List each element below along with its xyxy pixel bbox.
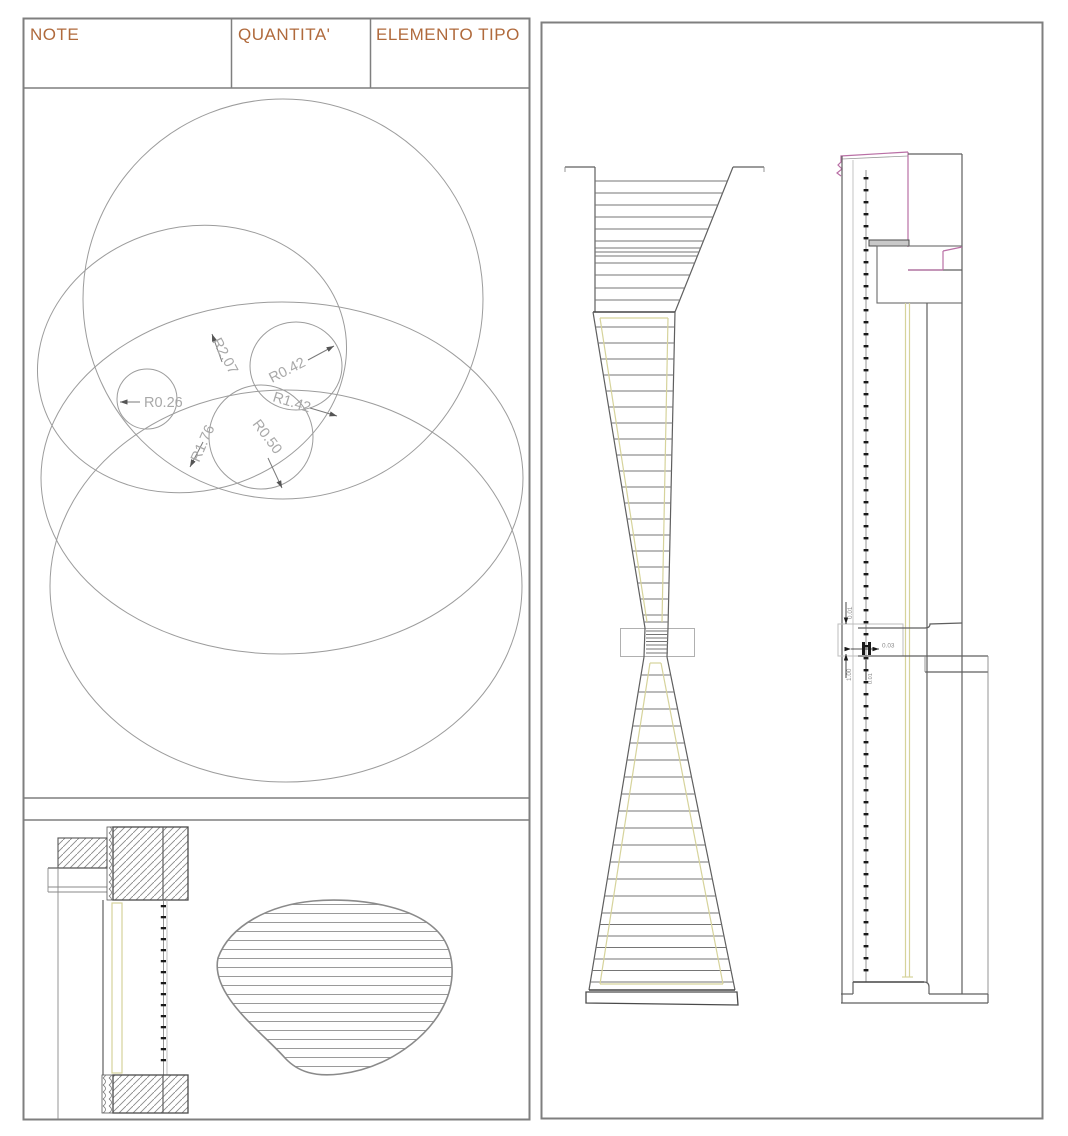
sill-assembly	[841, 982, 988, 1003]
waist-collar-block	[621, 629, 695, 657]
upper-glass-outline	[600, 318, 668, 622]
funnel-louvers	[595, 181, 727, 300]
facade-section: 0.01 0.03 1.00 0.01	[837, 152, 988, 1003]
lower-cone-louvers	[590, 675, 733, 982]
right-panel: 0.01 0.03 1.00 0.01	[542, 23, 1043, 1119]
ledge-profile	[869, 240, 909, 246]
frame-section-detail	[48, 827, 188, 1119]
base-plate	[586, 992, 738, 1005]
profile-plan-blob	[217, 900, 452, 1075]
dim-001-bottom: 0.01	[868, 673, 874, 684]
dim-001-top: 0.01	[847, 606, 854, 619]
head-block	[877, 246, 962, 303]
cad-sheet: NOTE QUANTITA' ELEMENTO TIPO R0.26	[0, 0, 1068, 1136]
header-cell-note: NOTE	[30, 25, 79, 44]
radius-label-r207: R2.07	[208, 335, 240, 377]
left-panel: NOTE QUANTITA' ELEMENTO TIPO R0.26	[7, 19, 529, 1120]
radius-label-r142: R1.42	[271, 390, 313, 417]
right-panel-border	[542, 23, 1043, 1119]
radius-label-r042: R0.42	[267, 355, 309, 387]
tower-elevation	[565, 167, 764, 1005]
waist-junction: 0.01 0.03 1.00 0.01	[838, 602, 988, 994]
dim-100: 1.00	[846, 668, 853, 681]
dim-003: 0.03	[882, 643, 895, 650]
large-circle-bottom	[50, 390, 522, 782]
waist-neck-louvers	[646, 631, 668, 653]
large-ellipse-left	[7, 191, 377, 527]
circle-construction-drawing: R0.26 R2.07 R0.42 R1.42 R1.76 R0.50	[7, 99, 523, 782]
large-ellipse-wide	[41, 302, 523, 654]
large-circle-top	[83, 99, 483, 499]
header-cell-elemento-tipo: ELEMENTO TIPO	[376, 25, 520, 44]
lower-cone-right-edge	[667, 657, 735, 990]
lower-cone-left-edge	[589, 657, 644, 990]
glass-pane-outline	[112, 903, 122, 1073]
radius-label-r050: R0.50	[249, 417, 285, 458]
drawing-canvas: NOTE QUANTITA' ELEMENTO TIPO R0.26	[0, 0, 1068, 1136]
hatched-block-left	[58, 838, 107, 868]
funnel-right-edge	[675, 167, 733, 312]
radius-label-r026: R0.26	[144, 395, 183, 411]
bottom-hatched-assembly	[102, 1075, 188, 1113]
header-table: NOTE QUANTITA' ELEMENTO TIPO	[23, 19, 530, 89]
fastener-ticks-detail	[161, 905, 166, 1061]
header-cell-quantita: QUANTITA'	[238, 25, 330, 44]
top-hatched-assembly	[107, 827, 188, 900]
flashing-profile-top	[837, 152, 908, 176]
